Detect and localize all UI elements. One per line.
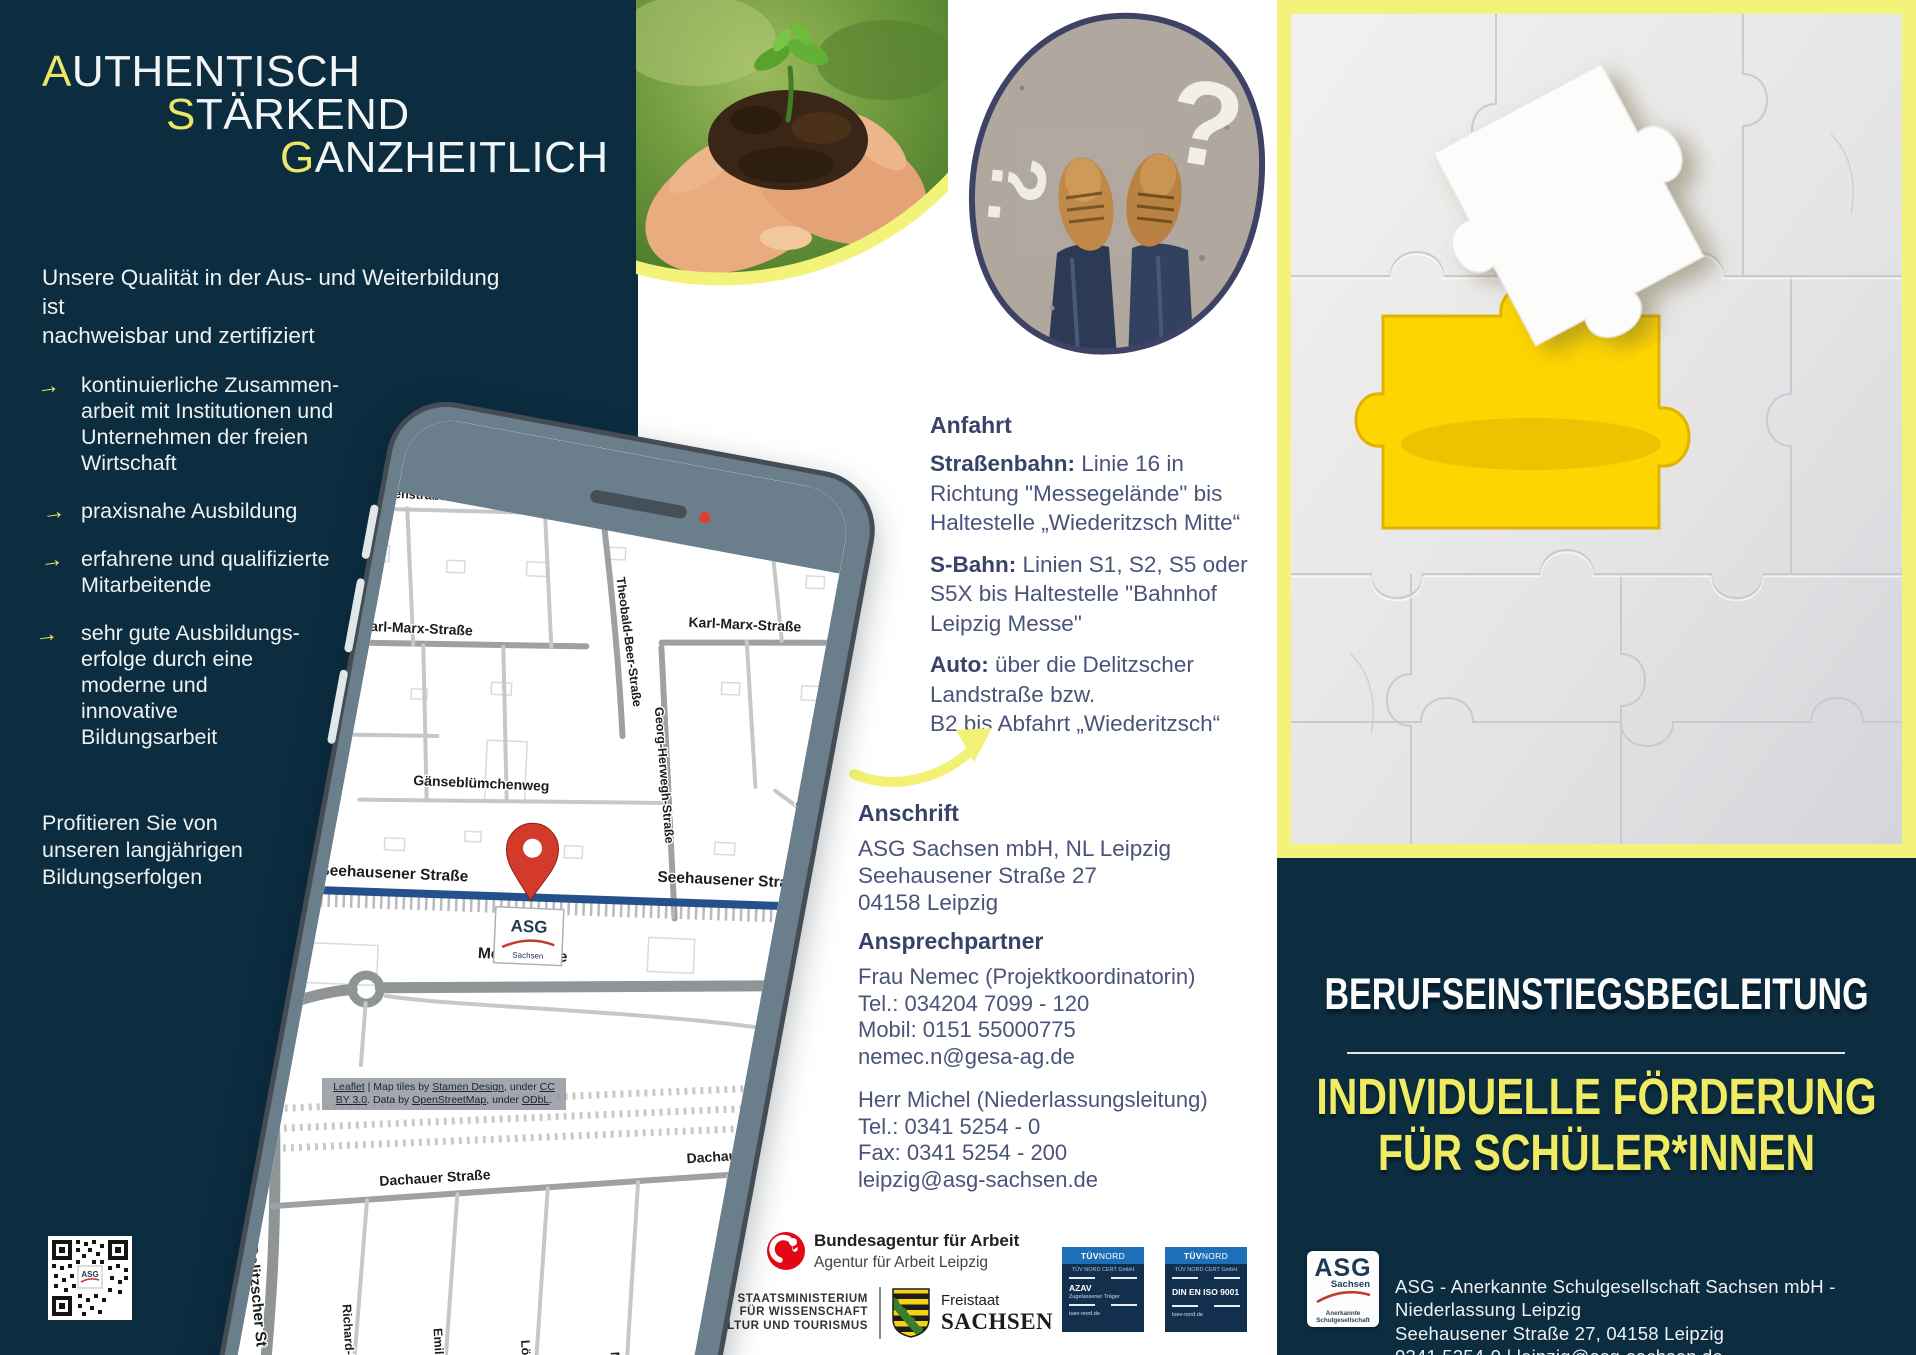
bundesagentur-logo: Bundesagentur für Arbeit Agentur für Arb…: [766, 1231, 1019, 1272]
tuev-badge-iso9001: TÜVNORD TÜV NORD CERT GmbH DIN EN ISO 90…: [1165, 1247, 1247, 1332]
badge-rule: [1165, 1273, 1247, 1281]
osm-link[interactable]: OpenStreetMap: [412, 1094, 486, 1106]
logo-divider: [879, 1287, 881, 1339]
list-item: → praxisnahe Ausbildung: [42, 498, 372, 524]
svg-text:Emil-März-: Emil-März-: [430, 1328, 448, 1355]
svg-text:ASG: ASG: [81, 1270, 98, 1279]
freistaat-text: Freistaat: [941, 1292, 1053, 1309]
headline-initial: G: [280, 133, 315, 182]
arrow-icon: →: [40, 496, 69, 525]
arrow-icon: →: [39, 544, 72, 599]
puzzle-photo: [1291, 14, 1902, 844]
ansprechpartner-title: Ansprechpartner: [858, 928, 1258, 955]
qr-code-graphic: ASG: [48, 1236, 132, 1320]
saxony-coat-of-arms: [892, 1288, 930, 1338]
right-navy-panel: BERUFSEINSTIEGSBEGLEITUNG INDIVIDUELLE F…: [1277, 858, 1916, 1355]
arrow-icon: →: [33, 619, 77, 751]
contact-nemec: Frau Nemec (Projektkoordinatorin) Tel.: …: [858, 964, 1258, 1070]
asg-logo: ASG Sachsen Anerkannte Schulgesellschaft: [1307, 1251, 1379, 1327]
badge-site-text: tuev-nord.de: [1062, 1308, 1144, 1317]
list-item: → erfahrene und qualifizierte Mitarbeite…: [42, 546, 372, 598]
outro-text: Profitieren Sie von unseren langjährigen…: [42, 810, 243, 891]
company-footer-text: ASG - Anerkannte Schulgesellschaft Sachs…: [1395, 1275, 1916, 1355]
bundesagentur-title: Bundesagentur für Arbeit: [814, 1231, 1019, 1251]
plant-photo: [636, 0, 948, 292]
headline: AUTHENTISCH STÄRKEND GANZHEITLICH: [42, 50, 609, 179]
tuev-cert-text: TÜV NORD CERT GmbH: [1062, 1267, 1144, 1273]
contact-michel: Herr Michel (Niederlassungsleitung) Tel.…: [858, 1087, 1258, 1193]
list-item: → sehr gute Ausbildungs- erfolge durch e…: [42, 620, 372, 750]
sachsen-text: SACHSEN: [941, 1309, 1053, 1335]
anfahrt-section: Anfahrt Straßenbahn: Linie 16 in Richtun…: [930, 412, 1275, 739]
badge-main-text: AZAV: [1062, 1281, 1144, 1293]
asg-logo-swoosh: [1313, 1291, 1373, 1303]
headline-line-2: STÄRKEND: [166, 93, 609, 136]
bundesagentur-sub: Agentur für Arbeit Leipzig: [814, 1254, 1019, 1272]
phone-speaker: [589, 489, 688, 520]
headline-line-1: AUTHENTISCH: [42, 50, 609, 93]
list-item: → kontinuierliche Zusammen- arbeit mit I…: [42, 372, 372, 476]
tuev-badge-azav: TÜVNORD TÜV NORD CERT GmbH AZAV Zugelass…: [1062, 1247, 1144, 1332]
badge-rule: [1165, 1297, 1247, 1309]
map-attribution: Leaflet | Map tiles by Stamen Design, un…: [322, 1078, 566, 1110]
bundesagentur-icon: [766, 1231, 806, 1271]
program-subtitle: INDIVIDUELLE FÖRDERUNG FÜR SCHÜLER*INNEN: [1277, 1080, 1916, 1170]
anfahrt-title: Anfahrt: [930, 412, 1275, 439]
badge-main-text: DIN EN ISO 9001: [1165, 1281, 1247, 1297]
title-divider: [1347, 1052, 1845, 1054]
svg-text:ASG: ASG: [510, 916, 548, 937]
asg-logo-text: ASG: [1307, 1257, 1379, 1279]
anschrift-title: Anschrift: [858, 800, 1258, 827]
svg-text:Dombrows: Dombrows: [698, 1347, 716, 1355]
anfahrt-tram: Straßenbahn: Linie 16 in Richtung "Messe…: [930, 449, 1275, 538]
ansprechpartner-section: Ansprechpartner Frau Nemec (Projektkoord…: [858, 928, 1258, 1193]
phone-camera-dot: [698, 511, 711, 524]
odbl-link[interactable]: ODbL: [522, 1094, 549, 1106]
tuev-cert-text: TÜV NORD CERT GmbH: [1165, 1267, 1247, 1273]
headline-initial: S: [166, 90, 196, 139]
badge-site-text: tuev-nord.de: [1165, 1309, 1247, 1318]
feet-question-photo: ? ?.: [962, 8, 1274, 360]
leaflet-link[interactable]: Leaflet: [333, 1081, 365, 1093]
curved-arrow-icon: [848, 700, 1008, 792]
anschrift-section: Anschrift ASG Sachsen mbH, NL Leipzig Se…: [858, 800, 1258, 916]
svg-text:Mammont: Mammont: [608, 1351, 626, 1355]
stamen-link[interactable]: Stamen Design: [432, 1081, 504, 1093]
headline-line-3: GANZHEITLICH: [280, 136, 609, 179]
badge-rule: [1062, 1273, 1144, 1281]
program-title: BERUFSEINSTIEGSBEGLEITUNG: [1277, 976, 1916, 1015]
badge-sub-text: Zugelassener Träger: [1062, 1293, 1144, 1300]
brochure-canvas: AUTHENTISCH STÄRKEND GANZHEITLICH Unsere…: [0, 0, 1916, 1355]
pin-asg-box: ASG Sachsen: [494, 907, 564, 966]
address-text: ASG Sachsen mbH, NL Leipzig Seehausener …: [858, 835, 1258, 916]
question-mark-paint-side: ?.: [970, 151, 1065, 229]
tuev-nord-logo: TÜVNORD: [1165, 1247, 1247, 1264]
arrow-icon: →: [35, 371, 75, 478]
qr-code: ASG: [48, 1236, 132, 1320]
ministry-logo: STAATSMINISTERIUM FÜR WISSENSCHAFT KULTU…: [688, 1287, 1053, 1339]
svg-text:Sachsen: Sachsen: [512, 950, 544, 960]
puzzle-photo-frame: [1277, 0, 1916, 858]
bullet-list: → kontinuierliche Zusammen- arbeit mit I…: [42, 372, 372, 772]
tuev-nord-logo: TÜVNORD: [1062, 1247, 1144, 1264]
quality-intro-text: Unsere Qualität in der Aus- und Weiterbi…: [42, 263, 512, 350]
badge-rule: [1062, 1300, 1144, 1308]
asg-logo-subtitle: Anerkannte Schulgesellschaft: [1307, 1310, 1379, 1324]
headline-initial: A: [42, 47, 72, 96]
anfahrt-sbahn: S-Bahn: Linien S1, S2, S5 oder S5X bis H…: [930, 550, 1275, 639]
